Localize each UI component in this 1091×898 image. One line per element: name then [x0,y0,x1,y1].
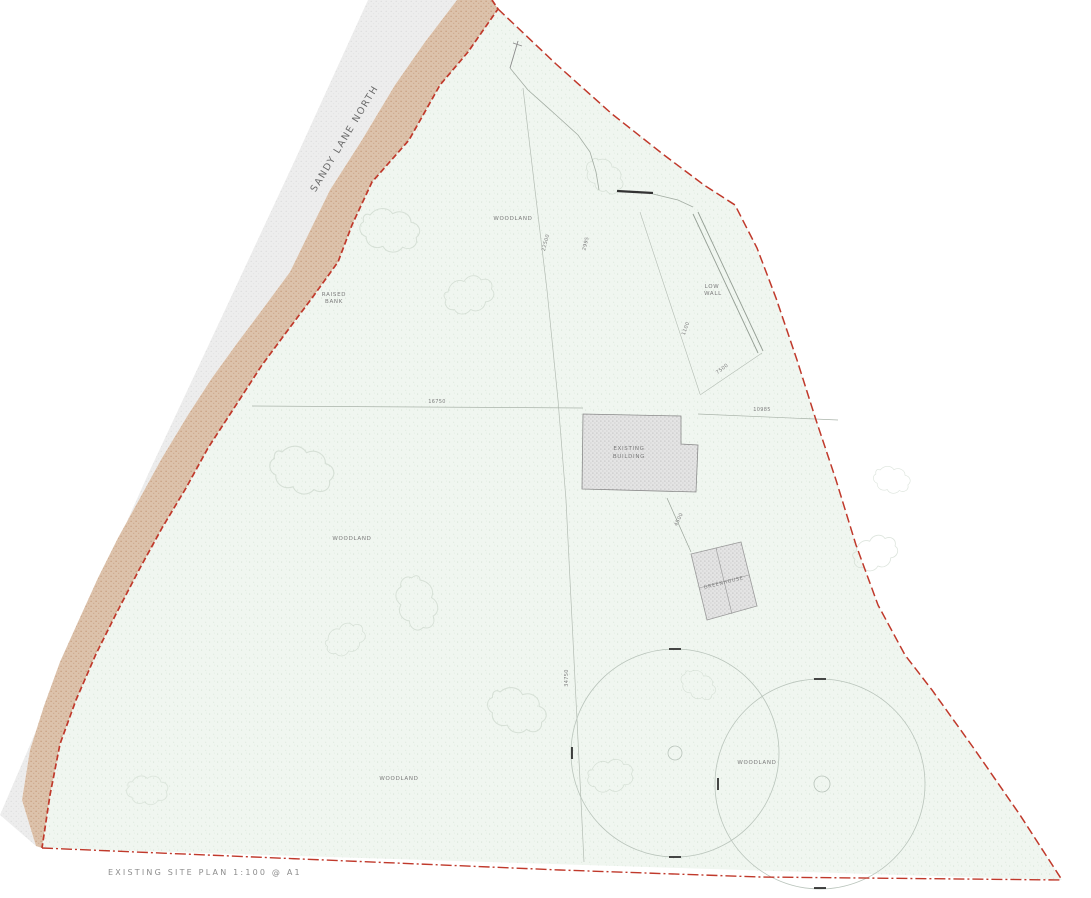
dim-building-east: 10985 [753,407,770,413]
dim-south-fence: 34750 [564,669,570,686]
building-label-line2: BUILDING [613,454,645,460]
woodland-label-north: WOODLAND [493,216,532,222]
low-wall-label-line1: LOW [705,284,720,290]
site-plan-drawing: SANDY LANE NORTH RAISED BANK WOODLAND WO… [0,0,1091,898]
site-plan-svg: SANDY LANE NORTH RAISED BANK WOODLAND WO… [0,0,1091,898]
existing-building [582,414,698,492]
building-label-line1: EXISTING [613,446,644,452]
woodland-label-west: WOODLAND [332,536,371,542]
low-wall-label-line2: WALL [704,291,722,297]
woodland-label-east: WOODLAND [737,760,776,766]
woodland-label-south: WOODLAND [379,776,418,782]
bank-label-line2: BANK [325,299,343,305]
bank-label-line1: RAISED [322,292,346,298]
dim-building-west: 16750 [428,399,445,405]
drawing-title: EXISTING SITE PLAN 1:100 @ A1 [108,868,302,877]
